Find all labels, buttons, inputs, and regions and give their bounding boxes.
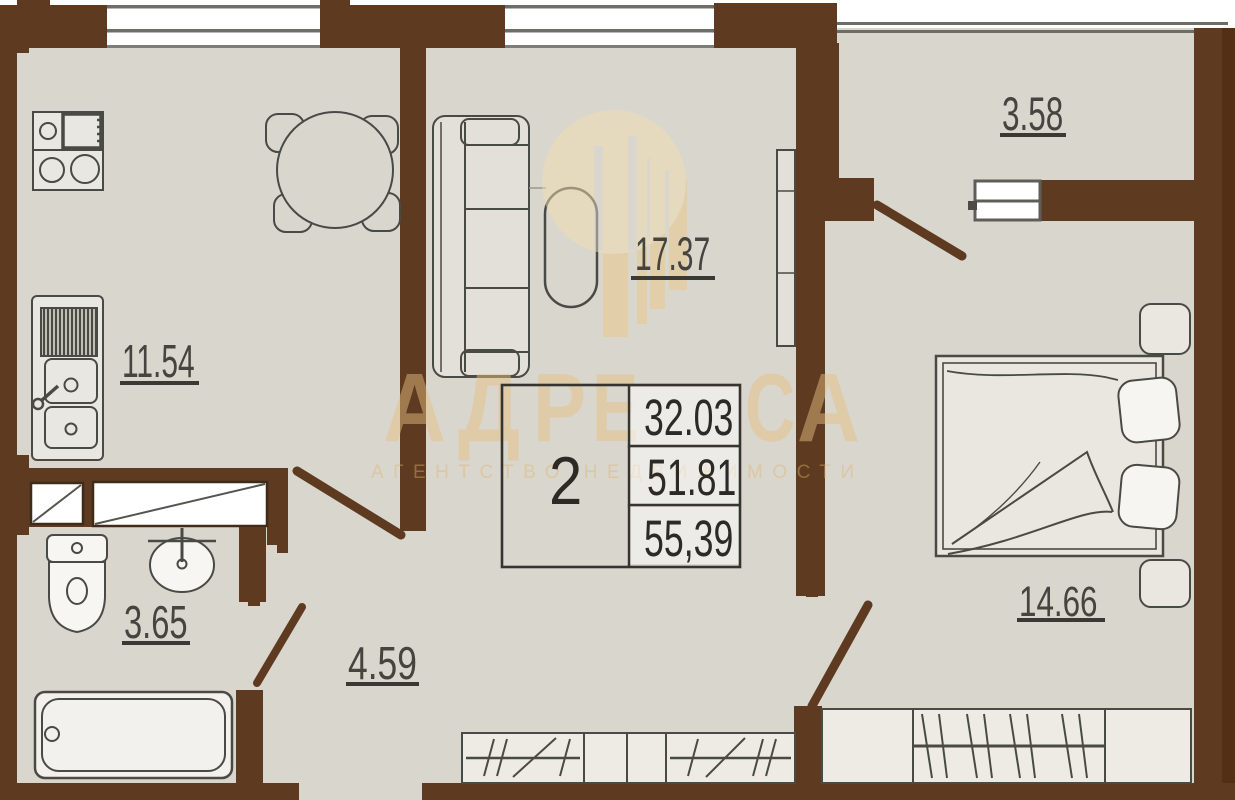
svg-text:11.54: 11.54: [122, 337, 195, 388]
svg-text:55,39: 55,39: [644, 511, 733, 568]
svg-text:51.81: 51.81: [647, 450, 736, 507]
svg-text:3.65: 3.65: [124, 598, 188, 649]
svg-text:2: 2: [549, 442, 582, 518]
svg-text:32.03: 32.03: [644, 390, 733, 447]
svg-text:АГЕНТСТВО НЕДВИЖИМОСТИ: АГЕНТСТВО НЕДВИЖИМОСТИ: [371, 462, 864, 483]
svg-text:3.58: 3.58: [1002, 89, 1063, 141]
svg-text:А: А: [797, 353, 860, 462]
svg-text:4.59: 4.59: [348, 638, 417, 690]
svg-text:14.66: 14.66: [1019, 577, 1098, 625]
svg-text:С: С: [745, 353, 795, 462]
svg-text:А: А: [383, 353, 446, 462]
svg-text:17.37: 17.37: [635, 228, 710, 280]
svg-text:Д: Д: [458, 353, 520, 462]
